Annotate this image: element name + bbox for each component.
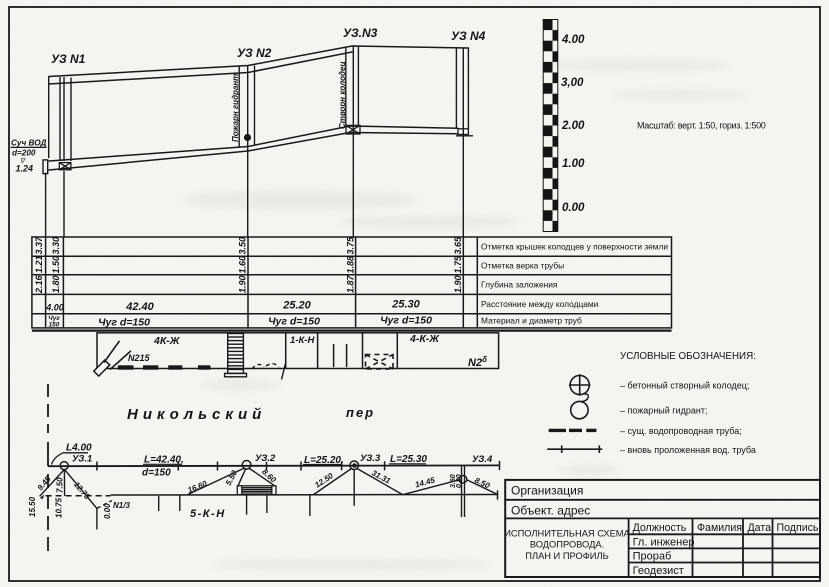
svg-text:Фамилия: Фамилия (697, 522, 742, 534)
svg-text:150: 150 (49, 322, 60, 329)
svg-text:Створн колодец: Створн колодец (338, 61, 347, 129)
svg-text:– сущ. водопроводная труба;: – сущ. водопроводная труба; (620, 426, 742, 436)
svg-text:– пожарный гидрант;: – пожарный гидрант; (620, 406, 707, 416)
svg-text:УЗ.3: УЗ.3 (360, 453, 381, 464)
svg-text:1.21: 1.21 (34, 255, 44, 273)
svg-text:1.87: 1.87 (346, 274, 356, 293)
svg-text:1.24: 1.24 (16, 164, 34, 174)
svg-text:Геодезист: Геодезист (633, 565, 684, 577)
svg-text:Организация: Организация (511, 484, 583, 498)
svg-text:1.50: 1.50 (51, 256, 61, 274)
svg-text:0.00: 0.00 (103, 503, 112, 519)
svg-text:3,00: 3,00 (561, 77, 584, 89)
svg-text:ИСПОЛНИТЕЛЬНАЯ СХЕМА: ИСПОЛНИТЕЛЬНАЯ СХЕМА (504, 529, 630, 539)
svg-text:3.75: 3.75 (346, 236, 356, 255)
svg-text:0.00: 0.00 (562, 202, 585, 214)
svg-text:3.30: 3.30 (51, 237, 61, 255)
svg-text:Прораб: Прораб (633, 551, 672, 563)
svg-text:УЗ.4: УЗ.4 (472, 454, 493, 465)
svg-text:Подпись: Подпись (777, 522, 819, 534)
svg-text:5-К-Н: 5-К-Н (190, 508, 226, 520)
svg-text:УЗ N1: УЗ N1 (51, 52, 86, 66)
svg-text:УЗ N2: УЗ N2 (237, 46, 272, 60)
svg-text:Суч ВОД: Суч ВОД (11, 139, 46, 148)
svg-text:4-К-Ж: 4-К-Ж (409, 333, 440, 345)
svg-text:1.80: 1.80 (51, 275, 61, 293)
svg-text:25.30: 25.30 (391, 299, 420, 311)
svg-text:1.60: 1.60 (238, 256, 248, 274)
svg-text:Отметка крышек колодцев у пове: Отметка крышек колодцев у поверхности зе… (481, 242, 668, 252)
svg-text:– вновь проложенная вод. труба: – вновь проложенная вод. труба (620, 445, 756, 455)
svg-text:Глубина заложения: Глубина заложения (481, 280, 557, 290)
svg-text:1-К-Н: 1-К-Н (290, 335, 315, 346)
svg-text:0.80: 0.80 (456, 474, 463, 488)
svg-text:7.50: 7.50 (56, 477, 65, 493)
svg-text:15.50: 15.50 (28, 496, 37, 517)
svg-text:Расстояние между колодцами: Расстояние между колодцами (481, 299, 599, 309)
svg-text:УЗ N4: УЗ N4 (451, 29, 486, 43)
svg-text:Материал и диаметр труб: Материал и диаметр труб (481, 316, 582, 326)
svg-text:Должность: Должность (633, 522, 687, 534)
svg-text:N215: N215 (128, 353, 151, 363)
svg-text:пер: пер (346, 405, 375, 420)
svg-text:L=25.30: L=25.30 (390, 454, 427, 465)
svg-text:d=200: d=200 (12, 149, 36, 158)
svg-text:Гл. инженер: Гл. инженер (633, 537, 695, 549)
svg-text:Никольский: Никольский (127, 406, 266, 423)
svg-text:42.40: 42.40 (125, 301, 154, 313)
svg-text:4.00: 4.00 (45, 303, 64, 313)
svg-text:4.00: 4.00 (561, 34, 585, 46)
svg-text:L4.00: L4.00 (66, 443, 92, 454)
svg-text:4К-Ж: 4К-Ж (153, 335, 181, 347)
svg-text:Масштаб: верт. 1:50, гориз. 1:: Масштаб: верт. 1:50, гориз. 1:500 (637, 121, 766, 131)
svg-text:N1/3: N1/3 (113, 501, 130, 510)
svg-text:25.20: 25.20 (282, 300, 311, 312)
svg-text:Объект. адрес: Объект. адрес (511, 504, 590, 518)
svg-text:Пожарн гидрант: Пожарн гидрант (231, 74, 240, 142)
svg-text:УЗ.2: УЗ.2 (255, 453, 276, 464)
svg-text:Отметка верка трубы: Отметка верка трубы (481, 261, 564, 271)
svg-text:2.16: 2.16 (34, 274, 44, 294)
svg-text:УЗ.1: УЗ.1 (72, 454, 92, 465)
svg-text:Дата: Дата (748, 522, 772, 534)
svg-text:Чуг d=150: Чуг d=150 (268, 316, 320, 328)
svg-text:1.90: 1.90 (238, 275, 248, 293)
svg-text:– бетонный створный колодец;: – бетонный створный колодец; (620, 381, 749, 391)
svg-text:Чуг d=150: Чуг d=150 (98, 317, 150, 329)
svg-text:1.88: 1.88 (346, 256, 356, 274)
svg-text:Чуг d=150: Чуг d=150 (380, 315, 432, 327)
svg-text:УЗ.N3: УЗ.N3 (343, 26, 378, 40)
svg-text:2.00: 2.00 (561, 120, 585, 132)
svg-text:10.75: 10.75 (55, 497, 64, 518)
svg-text:УСЛОВНЫЕ ОБОЗНАЧЕНИЯ:: УСЛОВНЫЕ ОБОЗНАЧЕНИЯ: (620, 351, 756, 362)
svg-text:1.90: 1.90 (453, 275, 463, 293)
svg-text:ВОДОПРОВОДА.: ВОДОПРОВОДА. (530, 540, 604, 550)
svg-text:ПЛАН И ПРОФИЛЬ: ПЛАН И ПРОФИЛЬ (525, 551, 608, 561)
svg-text:1.75: 1.75 (453, 255, 463, 274)
svg-text:3.50: 3.50 (238, 237, 248, 255)
svg-text:3.65: 3.65 (453, 236, 463, 255)
svg-text:d=150: d=150 (142, 468, 171, 479)
svg-text:3.37: 3.37 (34, 236, 44, 255)
svg-text:1.00: 1.00 (562, 158, 585, 170)
